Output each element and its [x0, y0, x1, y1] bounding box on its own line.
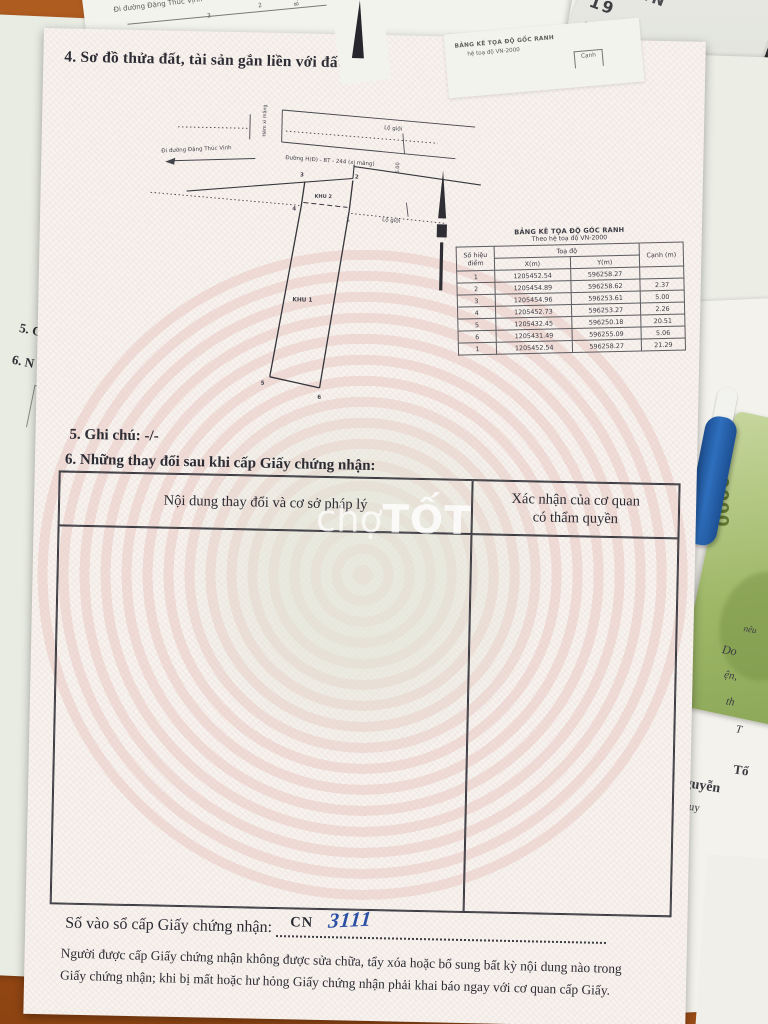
under-table-subtitle: hệ toạ độ VN-2000	[467, 47, 520, 58]
changes-authority-line2: có thẩm quyền	[532, 508, 618, 528]
text-fragment: nêu	[743, 623, 757, 635]
serial-handwritten-number: 3111	[327, 906, 373, 933]
north-arrow-icon	[436, 170, 449, 290]
under-table-edge-column: Cạnh	[574, 49, 604, 68]
point-6-label: 6	[317, 395, 321, 401]
changes-authority-line1: Xác nhận của cơ quan	[511, 490, 640, 511]
text-fragment: ện,	[723, 669, 738, 683]
under-section6-fragment: 6. N	[11, 352, 36, 372]
text-fragment: T	[735, 723, 743, 736]
point-1-label: 1	[346, 217, 350, 223]
street-main-label: Đường H(Đ) - BT - 244 (xi măng)	[285, 154, 375, 168]
dimension-label: 6.00	[395, 162, 401, 173]
zone1-label: KHU 1	[292, 297, 312, 303]
under-point2-label: 2	[258, 2, 263, 9]
point-4-label: 4	[292, 206, 296, 212]
overlap-sheet-arrow	[331, 0, 391, 85]
under-dim-label: 8.00	[292, 0, 301, 6]
alley-label: Hẻm xi măng	[261, 104, 269, 136]
coordinate-table: BẢNG KÊ TỌA ĐỘ GÓC RANH Theo hệ toạ độ V…	[455, 225, 686, 356]
serial-label: Số vào sổ cấp Giấy chứng nhận:	[65, 915, 272, 936]
north-arrow2-icon	[352, 0, 366, 58]
under-street-left-label: Đi đường Đặng Thúc Vịnh	[113, 0, 203, 14]
parcel-diagram: Lộ giới Hẻm xi măng Đi đường Đặng Thúc V…	[132, 90, 483, 427]
col-point-header: Số hiệu điểm	[456, 246, 495, 271]
boundary-top-label: Lộ giới	[384, 124, 403, 133]
photo-scene: 5. G 6. N Đi đường Đặng Thúc Vịnh Đường …	[0, 0, 768, 1024]
point-3-label: 3	[300, 172, 304, 178]
zone2-label: KHU 2	[314, 194, 332, 200]
text-fragment: Tổ	[732, 761, 749, 779]
boundary-mid-label: Lộ giới	[382, 216, 401, 225]
point-2-label: 2	[355, 175, 359, 181]
text-fragment: Do	[721, 642, 738, 659]
changes-content-body	[51, 525, 472, 912]
street-direction-arrow-icon	[165, 158, 175, 165]
changes-authority-body	[464, 534, 679, 916]
section5-note: 5. Ghi chú: -/-	[69, 427, 159, 446]
point-5-label: 5	[261, 381, 265, 387]
text-fragment: th	[725, 695, 735, 708]
land-certificate-page: 4. Sơ đồ thửa đất, tài sản gắn liền với …	[23, 28, 706, 1024]
under-point3-label: 3	[207, 12, 212, 19]
serial-prefix: CN	[290, 914, 313, 931]
street-left-label: Đi đường Đặng Thúc Vịnh	[161, 144, 232, 154]
col-edge-header: Cạnh (m)	[639, 242, 684, 267]
chotot-watermark: chợTỐT	[263, 495, 524, 545]
